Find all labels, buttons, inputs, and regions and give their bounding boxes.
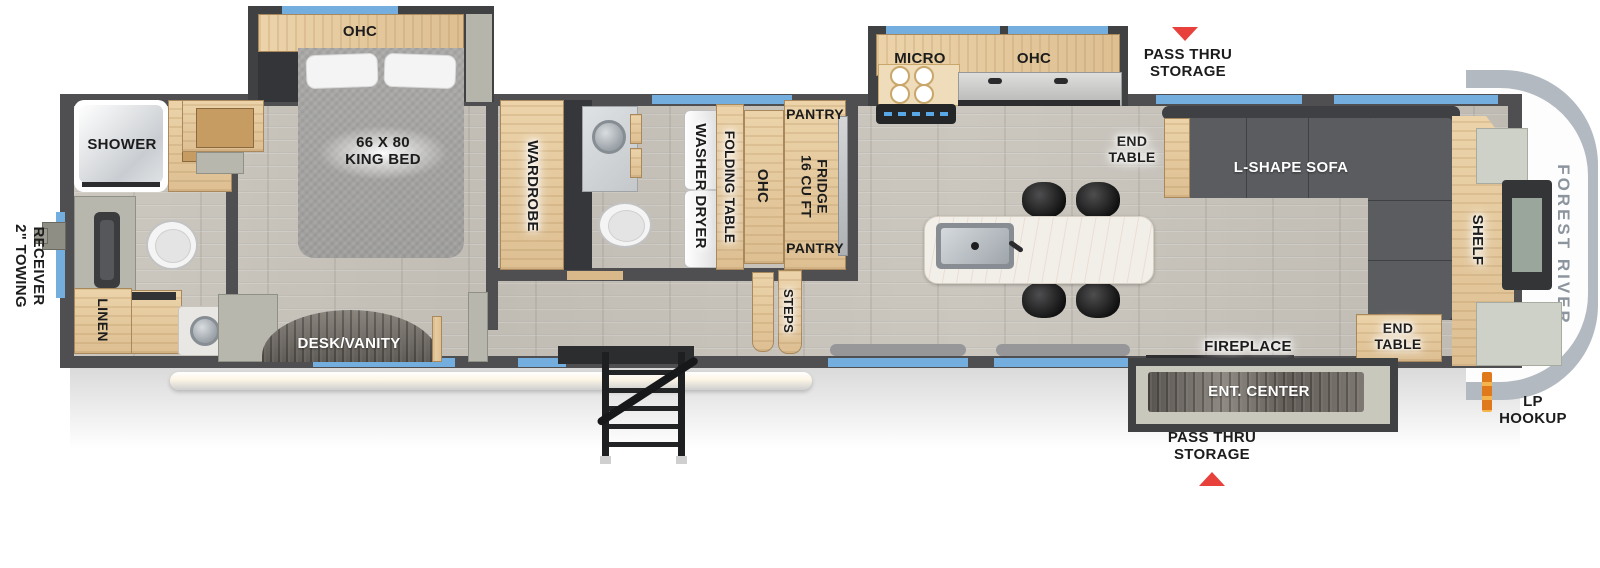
- slide-corner-pad: [466, 14, 492, 102]
- awning: [170, 372, 812, 390]
- entry-steps-rail: [602, 352, 609, 458]
- tv: [1502, 180, 1552, 290]
- kitchen-counter-edge: [958, 100, 1120, 106]
- pass-thru-bottom-arrow: [1199, 472, 1225, 486]
- window: [886, 26, 1000, 34]
- nightstand: [258, 52, 302, 102]
- fridge-door-edge: [838, 116, 848, 256]
- bath-sink: [190, 316, 220, 346]
- entry-step: [609, 442, 678, 447]
- pass-thru-top-arrow: [1172, 27, 1198, 41]
- end-table-top-label: ENDTABLE: [1098, 133, 1166, 167]
- cooktop-flame: [884, 112, 892, 116]
- entry-step-foot: [676, 456, 687, 464]
- window: [994, 358, 1134, 367]
- folding-table-label: FOLDING TABLE: [720, 102, 738, 272]
- micro-label: MICRO: [886, 51, 954, 67]
- front-cabinet: [1476, 128, 1528, 184]
- window: [1008, 26, 1108, 34]
- faucet: [1054, 78, 1068, 84]
- entry-step-foot: [600, 456, 611, 464]
- fridge-label-line1: 16 CU FT: [798, 132, 815, 242]
- entry-step: [609, 424, 678, 429]
- sofa-label: L-SHAPE SOFA: [1216, 160, 1366, 177]
- island-chair: [1076, 282, 1120, 318]
- fireplace-label: FIREPLACE: [1182, 339, 1314, 356]
- window-shade: [830, 344, 966, 356]
- front-cabinet: [1476, 302, 1562, 366]
- entry-platform: [558, 346, 694, 364]
- shower-label: SHOWER: [77, 137, 167, 153]
- washer-dryer-label: WASHER DRYER: [690, 101, 710, 271]
- midbath-drawer: [630, 114, 642, 144]
- end-table-bottom-label: ENDTABLE: [1364, 320, 1432, 354]
- bedroom-cabinet-low: [196, 152, 244, 174]
- shelf-label: SHELF: [1467, 195, 1487, 285]
- kitchen-ohc-label: OHC: [1004, 51, 1064, 67]
- pillow: [305, 53, 378, 89]
- steps-label: STEPS: [780, 271, 796, 351]
- window: [1334, 95, 1498, 104]
- desk-side-panel-right: [468, 292, 488, 362]
- pantry-top-label: PANTRY: [784, 107, 846, 123]
- burner: [914, 66, 934, 86]
- bed-label: 66 X 80KING BED: [323, 134, 443, 170]
- window-shade: [996, 344, 1130, 356]
- window: [282, 6, 398, 14]
- interior-steps: [752, 272, 774, 352]
- bedroom-ohc-label: OHC: [310, 23, 410, 41]
- cooktop-flame: [940, 112, 948, 116]
- ent-center-label: ENT. CENTER: [1194, 384, 1324, 400]
- lp-hookup-label: LPHOOKUP: [1497, 393, 1569, 429]
- island-sink: [936, 223, 1014, 269]
- fridge-label-line2: FRIDGE: [814, 132, 831, 242]
- sofa-seat-side: [1368, 118, 1452, 320]
- midbath-toilet: [598, 202, 652, 248]
- window: [828, 358, 968, 367]
- desk-label: DESK/VANITY: [289, 336, 409, 352]
- bedroom-dresser-top: [196, 108, 254, 148]
- floorplan: FOREST RIVER SHOWER LINEN 2" TOWING RECE…: [0, 0, 1600, 568]
- burner: [890, 84, 910, 104]
- midbath-sink: [592, 120, 626, 154]
- island-chair: [1076, 182, 1120, 218]
- hallway-threshold: [567, 271, 623, 280]
- rear-toilet: [146, 220, 198, 270]
- island-chair: [1022, 182, 1066, 218]
- window: [1156, 95, 1302, 104]
- towing-label-line2: RECEIVER: [29, 191, 47, 341]
- wardrobe-label: WARDROBE: [522, 101, 542, 271]
- lp-hookup-pipe: [1482, 372, 1492, 412]
- desk-edge: [432, 316, 442, 362]
- linen-label: LINEN: [94, 290, 110, 350]
- cooktop-flame: [926, 112, 934, 116]
- burner: [914, 84, 934, 104]
- end-table-top: [1164, 118, 1190, 198]
- pillow: [383, 53, 456, 89]
- towing-label-line1: 2" TOWING: [11, 191, 29, 341]
- cooktop-flame: [912, 112, 920, 116]
- bath-mirror: [94, 212, 120, 288]
- pantry-bottom-label: PANTRY: [784, 241, 846, 257]
- pass-thru-bottom-label: PASS THRUSTORAGE: [1150, 429, 1274, 465]
- cooktop-flame: [898, 112, 906, 116]
- burner: [890, 66, 910, 86]
- pass-thru-top-label: PASS THRUSTORAGE: [1126, 46, 1250, 82]
- midbath-ohc-label: OHC: [753, 156, 771, 216]
- faucet: [988, 78, 1002, 84]
- midbath-drawer: [630, 148, 642, 178]
- island-chair: [1022, 282, 1066, 318]
